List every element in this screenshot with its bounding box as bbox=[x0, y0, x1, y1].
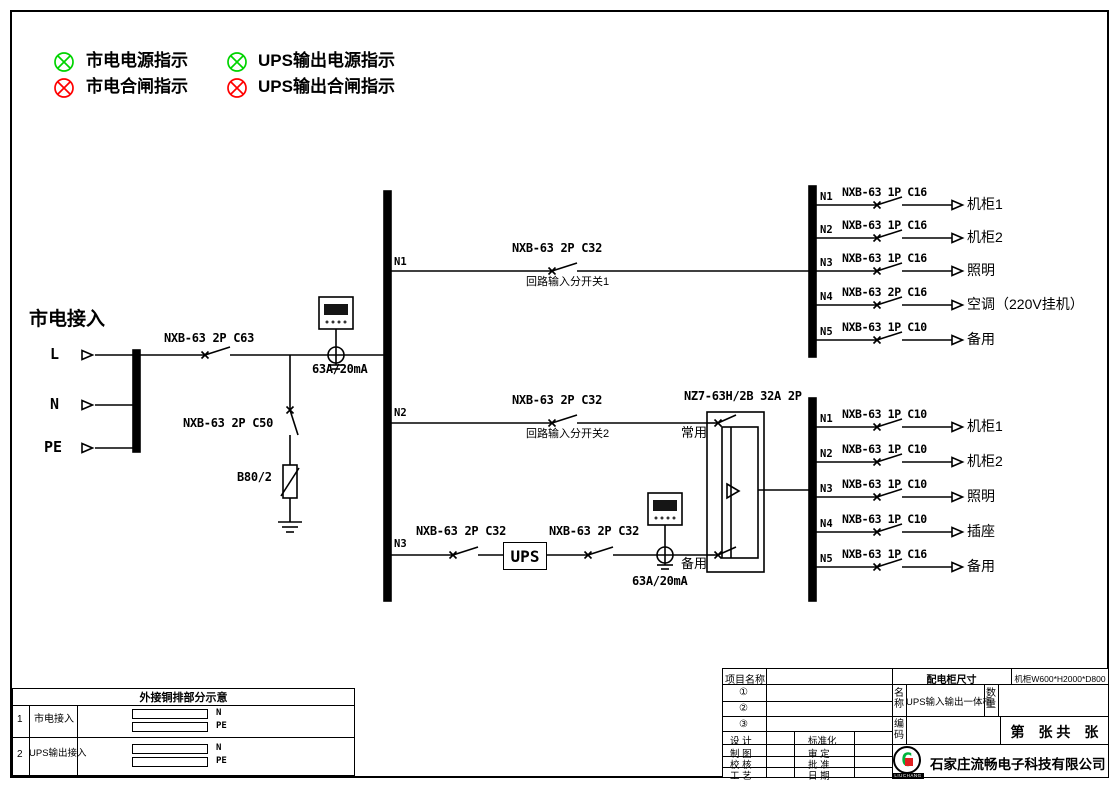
code-label: 编码 bbox=[893, 719, 905, 741]
branch-id: N1 bbox=[820, 192, 833, 204]
branch-breaker: NXB-63 1P C10 bbox=[842, 321, 927, 334]
row-no: 1 bbox=[17, 714, 23, 725]
mains-title: 市电接入 bbox=[29, 310, 105, 331]
copper-bar bbox=[132, 722, 208, 732]
ups-leakage-meter bbox=[648, 493, 682, 525]
branch-id: N5 bbox=[820, 554, 833, 566]
branch-load: 机柜2 bbox=[967, 454, 1003, 469]
mains-breaker-switch bbox=[202, 347, 231, 359]
top-output-busbar bbox=[809, 186, 816, 357]
branch-breaker: NXB-63 1P C10 bbox=[842, 513, 927, 526]
ground-symbol bbox=[278, 522, 302, 532]
ups-output-power-indicator-icon bbox=[228, 53, 246, 71]
mains-power-indicator-icon bbox=[55, 53, 73, 71]
spd-breaker-label: NXB-63 2P C50 bbox=[183, 417, 273, 430]
row3-label: ③ bbox=[739, 719, 748, 730]
feeder3-breaker1: NXB-63 2P C32 bbox=[416, 525, 506, 538]
branch-breaker: NXB-63 1P C16 bbox=[842, 252, 927, 265]
mains-leakage-meter bbox=[319, 297, 353, 329]
main-breaker-label: NXB-63 2P C63 bbox=[164, 332, 254, 345]
automatic-transfer-switch bbox=[707, 412, 809, 572]
name-label: 名称 bbox=[893, 688, 905, 710]
logo-square bbox=[905, 758, 913, 766]
ups-leakage-sensor bbox=[657, 547, 673, 569]
branch-breaker: NXB-63 1P C16 bbox=[842, 186, 927, 199]
branch-load: 备用 bbox=[967, 332, 995, 347]
mains-leakage-label: 63A/20mA bbox=[312, 363, 367, 376]
terminal-arrow-L bbox=[82, 351, 93, 360]
feeder1-switch bbox=[549, 263, 578, 275]
branch-breaker: NXB-63 2P C16 bbox=[842, 286, 927, 299]
branch-id: N5 bbox=[820, 327, 833, 339]
spd-breaker-switch bbox=[287, 407, 299, 436]
bar-label: PE bbox=[216, 721, 227, 731]
cabinet-size-value: 机柜W600*H2000*D800 bbox=[1012, 673, 1108, 685]
branch-breaker: NXB-63 1P C10 bbox=[842, 443, 927, 456]
ats-normal-label: 常用 bbox=[681, 426, 707, 440]
schematic-drawing: 市电电源指示 UPS输出电源指示 市电合闸指示 UPS输出合闸指示 市电接入 L… bbox=[0, 0, 1117, 786]
terminal-label-L: L bbox=[50, 346, 59, 363]
branch-id: N3 bbox=[820, 484, 833, 496]
row-name: 市电接入 bbox=[31, 714, 77, 725]
busbar-table-title: 外接铜排部分示意 bbox=[13, 692, 354, 704]
branch-load: 备用 bbox=[967, 559, 995, 574]
branch-load: 机柜1 bbox=[967, 419, 1003, 434]
ups-input-switch bbox=[450, 547, 479, 559]
branch-breaker: NXB-63 1P C16 bbox=[842, 548, 927, 561]
row-no: 2 bbox=[17, 749, 23, 760]
external-busbar-table: 外接铜排部分示意 1 市电接入 N PE 2 UPS输出接入 N PE bbox=[12, 688, 355, 776]
feeder2-note: 回路输入分开关2 bbox=[526, 428, 609, 440]
bar-label: N bbox=[216, 708, 221, 718]
branch-load: 照明 bbox=[967, 263, 995, 278]
company-name: 石家庄流畅电子科技有限公司 bbox=[930, 753, 1106, 773]
branch-load: 机柜2 bbox=[967, 230, 1003, 245]
bar-label: PE bbox=[216, 756, 227, 766]
branch-id: N1 bbox=[820, 414, 833, 426]
bar-label: N bbox=[216, 743, 221, 753]
feeder2-breaker: NXB-63 2P C32 bbox=[512, 394, 602, 407]
project-name-label: 项目名称 bbox=[725, 671, 765, 686]
input-busbar bbox=[133, 350, 140, 452]
row-name: UPS输出接入 bbox=[29, 749, 77, 759]
legend-ups-close: UPS输出合闸指示 bbox=[258, 78, 395, 97]
feeder1-note: 回路输入分开关1 bbox=[526, 276, 609, 288]
branch-id: N2 bbox=[820, 225, 833, 237]
feeder1-breaker: NXB-63 2P C32 bbox=[512, 242, 602, 255]
main-busbar bbox=[384, 191, 391, 601]
ats-backup-label: 备用 bbox=[681, 557, 707, 571]
feeder2-switch bbox=[549, 415, 578, 427]
branch-breaker: NXB-63 1P C10 bbox=[842, 478, 927, 491]
branch-id: N4 bbox=[820, 292, 833, 304]
terminal-arrow-N bbox=[82, 401, 93, 410]
row2-label: ② bbox=[739, 703, 748, 714]
date-label: 日 期 bbox=[808, 768, 830, 782]
spd-model-label: B80/2 bbox=[237, 471, 272, 484]
copper-bar bbox=[132, 709, 208, 719]
feeder3-breaker2: NXB-63 2P C32 bbox=[549, 525, 639, 538]
craft-label: 工 艺 bbox=[730, 768, 752, 782]
feeder3-id: N3 bbox=[394, 539, 407, 551]
ups-leakage-label: 63A/20mA bbox=[632, 575, 687, 588]
terminal-label-PE: PE bbox=[44, 439, 62, 456]
branch-id: N4 bbox=[820, 519, 833, 531]
cabinet-size-label: 配电柜尺寸 bbox=[892, 671, 1011, 686]
copper-bar bbox=[132, 757, 208, 767]
copper-bar bbox=[132, 744, 208, 754]
branch-breaker: NXB-63 1P C10 bbox=[842, 408, 927, 421]
legend-ups-power: UPS输出电源指示 bbox=[258, 52, 395, 71]
branch-load: 空调（220V挂机） bbox=[967, 297, 1084, 312]
company-logo: G bbox=[893, 746, 921, 774]
branch-load: 插座 bbox=[967, 524, 995, 539]
terminal-arrow-PE bbox=[82, 444, 93, 453]
row1-label: ① bbox=[739, 687, 748, 698]
feeder1-id: N1 bbox=[394, 257, 407, 269]
branch-id: N3 bbox=[820, 258, 833, 270]
ups-box: UPS bbox=[503, 542, 547, 570]
ats-model-label: NZ7-63H/2B 32A 2P bbox=[684, 390, 802, 403]
branch-load: 照明 bbox=[967, 489, 995, 504]
logo-subtext: LIUCHANG bbox=[892, 773, 924, 779]
qty-label: 数量 bbox=[985, 688, 997, 710]
legend-mains-power: 市电电源指示 bbox=[86, 52, 188, 71]
mains-closing-indicator-icon bbox=[55, 79, 73, 97]
ups-output-switch bbox=[585, 547, 614, 559]
branch-id: N2 bbox=[820, 449, 833, 461]
legend-mains-close: 市电合闸指示 bbox=[86, 78, 188, 97]
feeder2-id: N2 bbox=[394, 408, 407, 420]
cabinet-name: UPS输入输出一体柜 bbox=[906, 694, 984, 708]
branch-breaker: NXB-63 1P C16 bbox=[842, 219, 927, 232]
ups-output-closing-indicator-icon bbox=[228, 79, 246, 97]
terminal-label-N: N bbox=[50, 396, 59, 413]
bottom-output-busbar bbox=[809, 398, 816, 601]
title-block: 项目名称 ① ② ③ 设 计 标准化 制 图 审 定 校 核 批 准 工 艺 日… bbox=[722, 668, 1109, 778]
sheet-number: 第 张 共 张 bbox=[1001, 722, 1108, 742]
branch-load: 机柜1 bbox=[967, 197, 1003, 212]
